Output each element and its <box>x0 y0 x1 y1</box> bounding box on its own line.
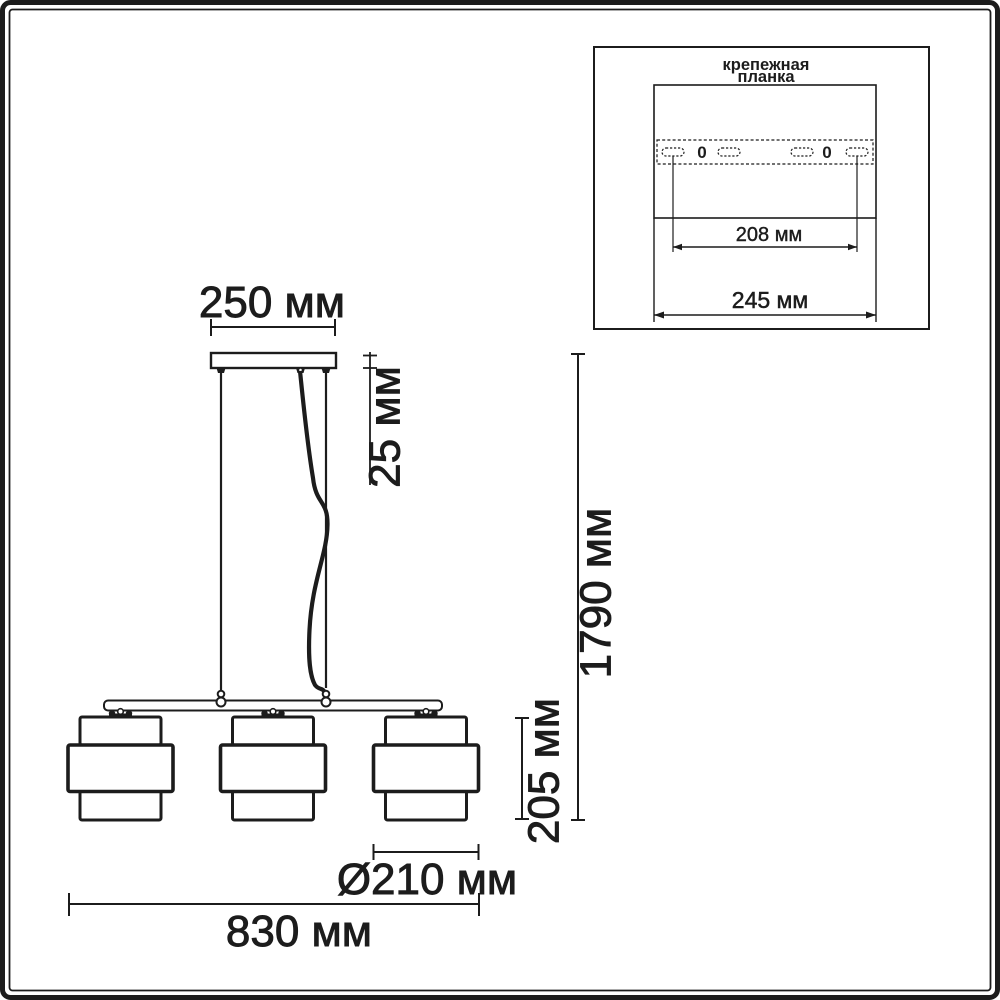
svg-text:205 мм: 205 мм <box>520 698 569 844</box>
svg-text:0: 0 <box>697 143 706 162</box>
svg-text:0: 0 <box>822 143 831 162</box>
svg-text:250 мм: 250 мм <box>199 278 345 327</box>
svg-text:25 мм: 25 мм <box>361 366 410 488</box>
svg-text:1790 мм: 1790 мм <box>572 508 621 679</box>
svg-text:830 мм: 830 мм <box>226 907 372 956</box>
svg-text:245 мм: 245 мм <box>732 287 808 313</box>
svg-text:Ø210 мм: Ø210 мм <box>337 855 517 904</box>
svg-text:208 мм: 208 мм <box>736 224 802 246</box>
svg-text:планка: планка <box>737 68 795 86</box>
